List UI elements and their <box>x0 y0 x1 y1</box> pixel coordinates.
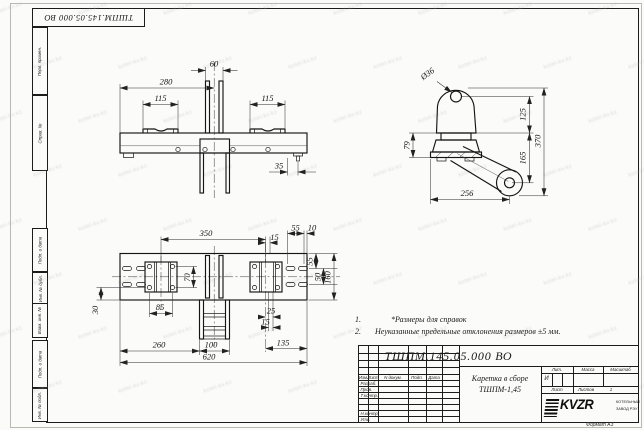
tb-line <box>541 393 638 394</box>
dim-front-60: 60 <box>210 59 219 69</box>
tb-product-name-2: ТШПМ-1,45 <box>459 385 541 394</box>
dim-front-115-left: 115 <box>154 93 166 103</box>
tb-line <box>359 398 459 399</box>
note-1-number: 1. <box>355 315 361 324</box>
tb-row-tkontr: Т.контр. <box>361 393 379 398</box>
tb-row-utv: Утв. <box>361 417 371 422</box>
dim-plan-55-top: 55 <box>291 223 300 233</box>
tb-list-label: Лист <box>551 387 562 392</box>
dim-plan-55-right: 55 <box>305 257 315 266</box>
drawing-sheet: kotel-kv.kzkotel-kv.kzkotel-kv.kzkotel-k… <box>0 0 644 430</box>
tb-listov-value: 1 <box>610 387 612 392</box>
tb-col-data: Дата <box>428 375 440 380</box>
dim-side-125: 125 <box>518 108 528 121</box>
tb-line <box>552 373 553 386</box>
dim-side-256: 256 <box>461 188 475 198</box>
dim-plan-15-top: 15 <box>270 232 279 242</box>
tb-line <box>359 353 459 354</box>
dim-side-165: 165 <box>518 152 528 165</box>
dim-front-115-right: 115 <box>261 93 273 103</box>
tb-company-line-1: КОТЕЛЬНЫЙ <box>616 400 640 404</box>
tb-company-line-2: ЗАВОД РЭУ <box>616 407 637 411</box>
note-1-text: *Размеры для справок <box>391 315 467 324</box>
tb-line <box>359 367 459 368</box>
tb-row-nkontr: Н.контр. <box>361 411 380 416</box>
tb-lit-value: И <box>544 376 548 382</box>
dim-plan-85: 85 <box>156 302 165 312</box>
tb-massa-label: Масса <box>582 367 595 372</box>
dim-plan-350: 350 <box>199 228 214 238</box>
dim-plan-15-bottom: 15 <box>261 317 270 327</box>
format-label: Формат А3 <box>586 422 613 428</box>
tb-doc-number: ТШПМ.145.05.000 ВО <box>359 346 538 366</box>
dim-front-35: 35 <box>274 161 284 171</box>
dim-plan-25: 25 <box>267 306 276 316</box>
dim-plan-30: 30 <box>90 305 100 315</box>
note-2-text: Неуказанные предельные отклонения размер… <box>375 327 561 336</box>
kvzr-logo-text: KVZR <box>560 396 593 412</box>
note-2-number: 2. <box>355 327 361 336</box>
tb-line <box>359 416 459 417</box>
tb-line <box>459 346 460 422</box>
dim-plan-620: 620 <box>203 352 217 362</box>
tb-line <box>359 386 459 387</box>
tb-masshtab-label: Масштаб <box>610 367 631 372</box>
tb-product-name-1: Каретка в сборе <box>459 374 541 383</box>
title-block: Изм. Лист N докум. Подп. Дата Разраб. Пр… <box>358 345 639 423</box>
tb-line <box>603 366 604 386</box>
dim-plan-10-top: 10 <box>308 223 317 233</box>
tb-lit-label: Лит. <box>552 367 562 372</box>
tb-col-podp: Подп. <box>411 375 423 380</box>
tb-line <box>359 404 459 405</box>
dim-plan-260: 260 <box>153 340 167 350</box>
dim-side-79: 79 <box>402 141 412 150</box>
dim-side-370: 370 <box>533 134 543 149</box>
tb-line <box>359 360 459 361</box>
tb-row-prov: Пров. <box>361 387 373 392</box>
dim-plan-135: 135 <box>277 338 290 348</box>
tb-col-list: Лист <box>367 375 378 380</box>
tb-line <box>541 373 638 374</box>
dim-plan-50-right: 50 <box>313 272 323 281</box>
dim-plan-160-right: 160 <box>323 270 333 284</box>
dim-front-280: 280 <box>160 77 174 87</box>
kvzr-logo-icon <box>544 399 560 417</box>
tb-line <box>573 366 574 393</box>
tb-line <box>562 373 563 386</box>
plan-view: 350 15 55 10 55 50 160 70 85 30 25 1 <box>90 223 340 367</box>
tb-listov-label: Листов <box>578 387 594 392</box>
side-view: Ø36 79 125 165 370 256 <box>402 65 549 204</box>
tb-col-ndoc: N докум. <box>384 375 402 380</box>
tb-row-razrab: Разраб. <box>361 381 377 386</box>
dim-side-dia36: Ø36 <box>418 65 437 83</box>
front-view: 60 280 115 115 35 <box>120 59 316 199</box>
dim-plan-100: 100 <box>205 340 219 350</box>
dim-plan-70: 70 <box>182 273 192 282</box>
